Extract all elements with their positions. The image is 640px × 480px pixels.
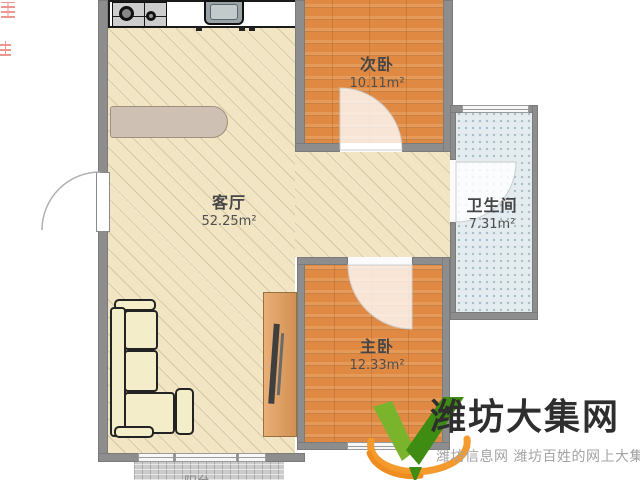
entry-door-swing-arc [42, 172, 100, 230]
red-watermark-fragment [0, 41, 11, 56]
red-watermark-fragment [1, 2, 15, 18]
floorplan-image: 阳台 [0, 0, 640, 480]
bedroom-master-door-swing [348, 265, 412, 329]
site-tagline: 潍坊信息网 潍坊百姓的网上大集 [436, 446, 640, 466]
bedroom-second-door-swing [340, 88, 402, 150]
site-name: 潍坊大集网 [430, 399, 635, 437]
bathroom-door-swing [456, 162, 516, 222]
